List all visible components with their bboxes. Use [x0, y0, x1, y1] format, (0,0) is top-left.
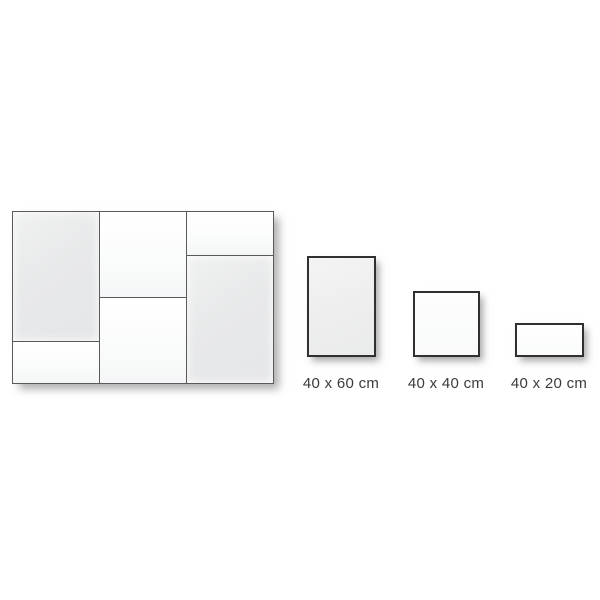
size-swatch-40x40 [413, 291, 480, 357]
layout-cell-left-strip-40x20 [13, 342, 99, 383]
tile-layout-preview [12, 211, 274, 384]
size-label-40x60: 40 x 60 cm [293, 374, 389, 394]
size-diagram-canvas: 40 x 60 cm 40 x 40 cm 40 x 20 cm [0, 0, 600, 600]
layout-column-left [13, 212, 99, 383]
layout-column-middle [99, 212, 187, 383]
size-label-40x40: 40 x 40 cm [398, 374, 494, 394]
layout-cell-middle-square-bottom-40x40 [100, 298, 186, 383]
size-swatch-40x20 [515, 323, 584, 357]
size-label-40x20: 40 x 20 cm [501, 374, 597, 394]
layout-cell-right-strip-40x20 [187, 212, 273, 256]
size-swatch-40x60 [307, 256, 376, 357]
layout-cell-middle-square-top-40x40 [100, 212, 186, 298]
layout-cell-right-tall-40x60 [187, 256, 273, 383]
layout-cell-left-tall-40x60 [13, 212, 99, 342]
layout-column-right [187, 212, 273, 383]
